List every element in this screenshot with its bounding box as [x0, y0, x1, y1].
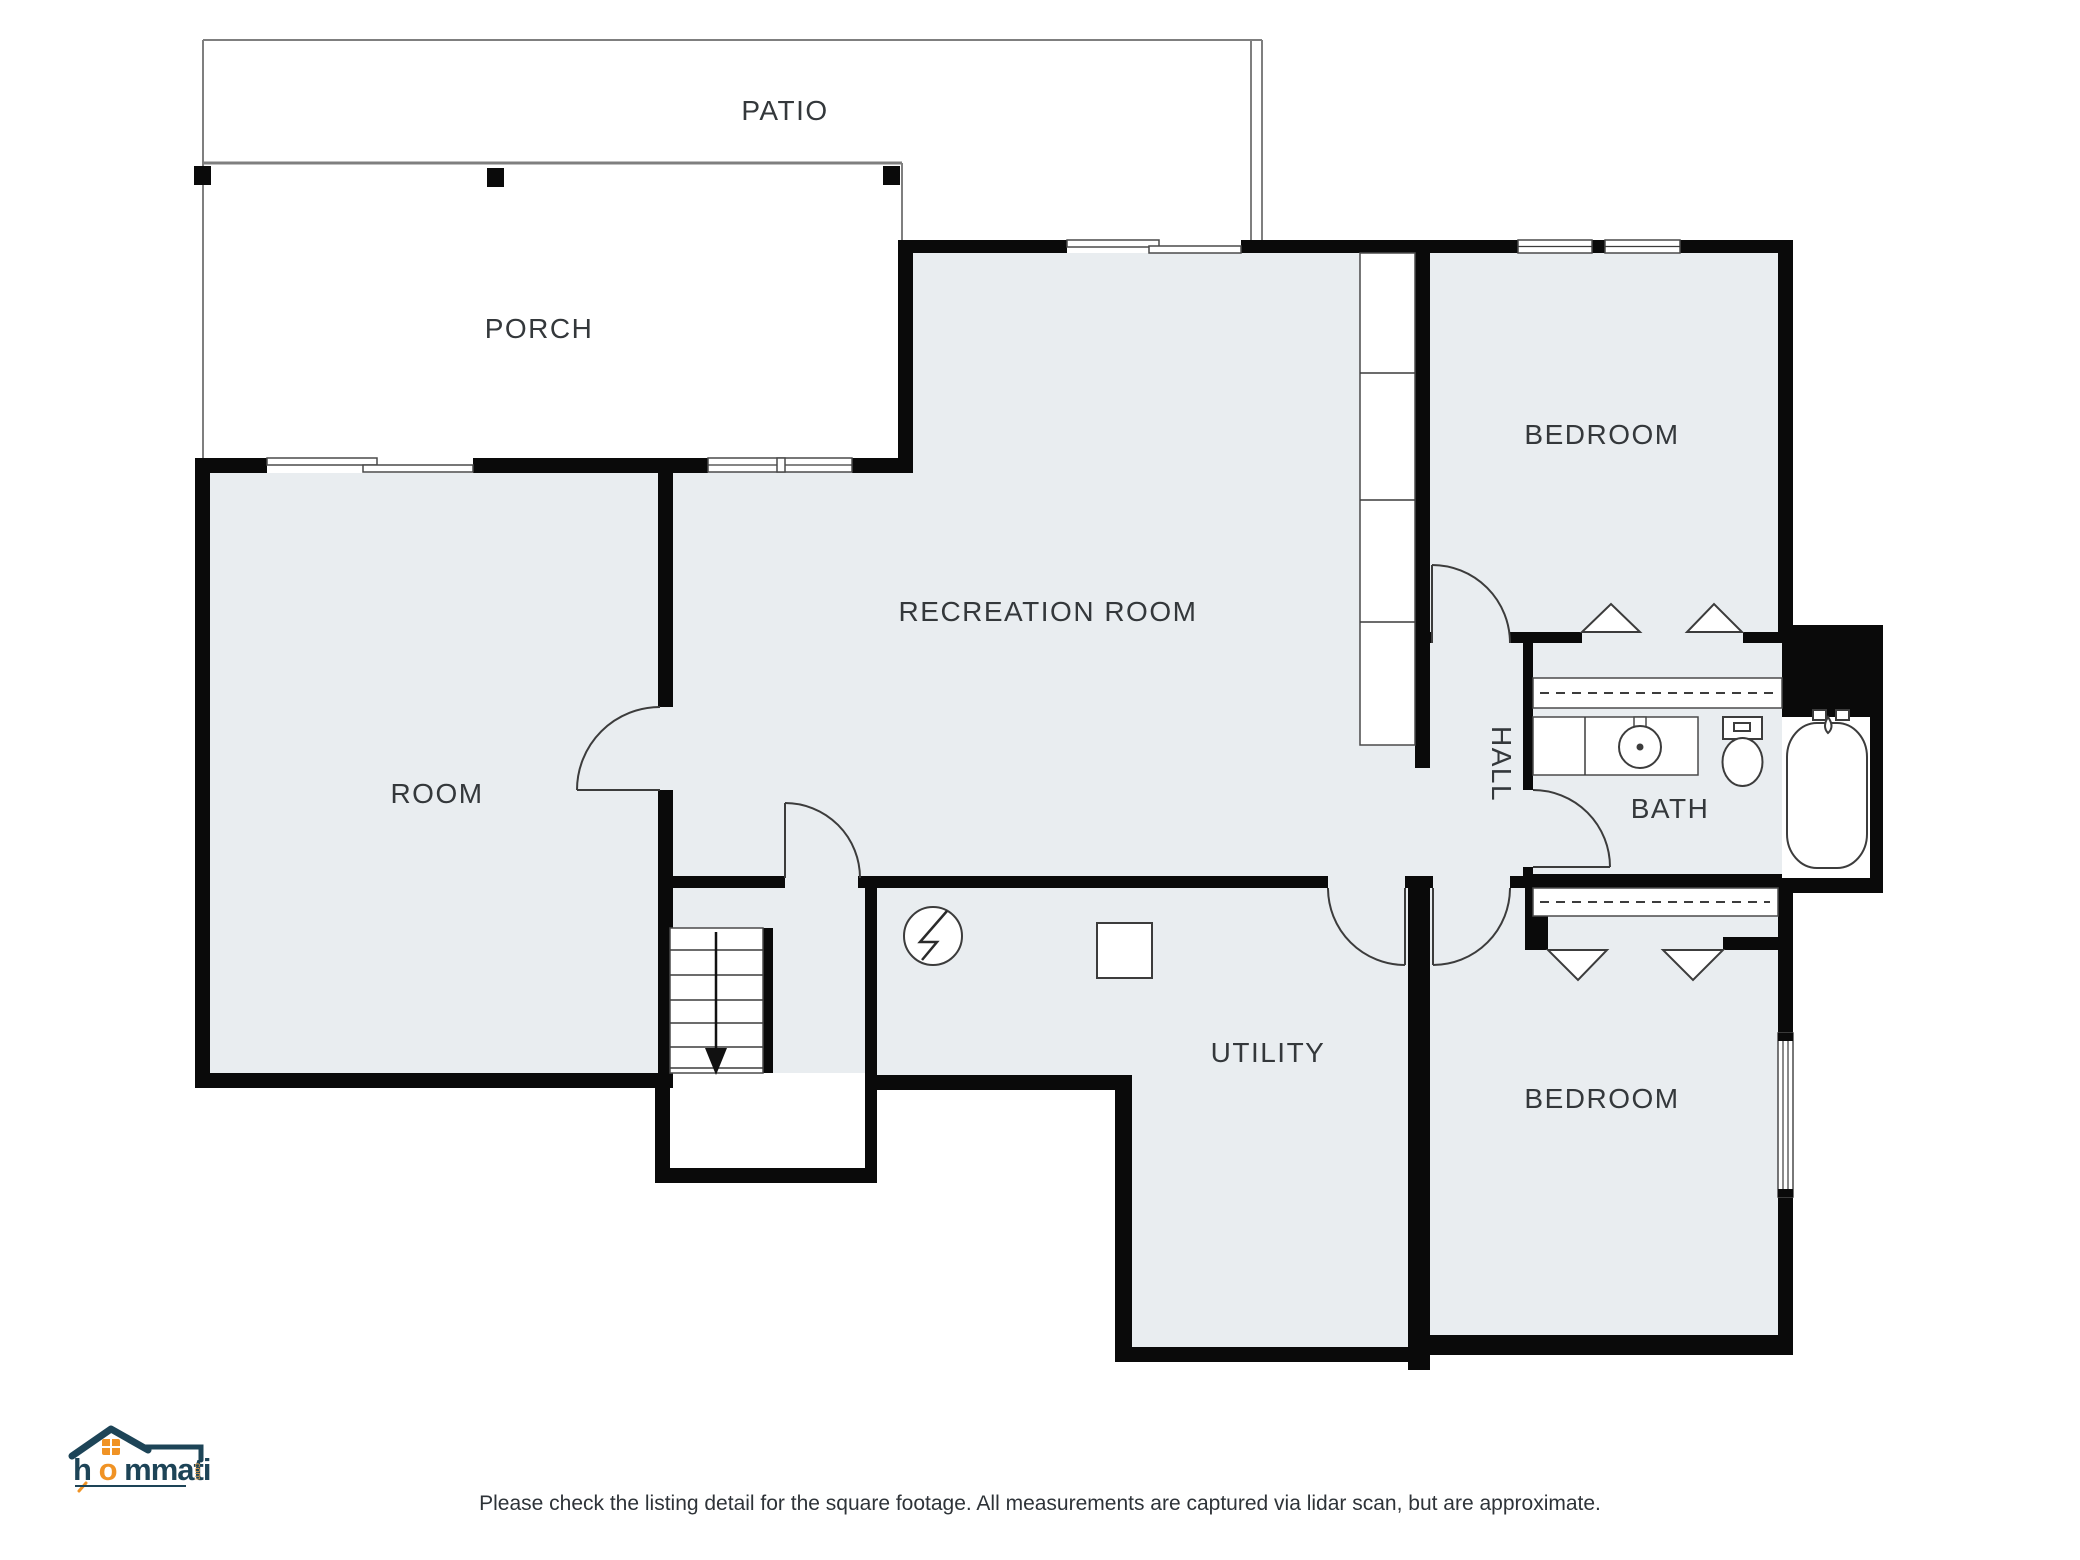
sliding-door-room: [267, 458, 473, 472]
bathroom-vanity: [1533, 717, 1698, 775]
toilet-icon: [1723, 717, 1763, 786]
closet-shelf-unit: [1360, 253, 1415, 745]
floor-plan-drawing: PATIO PORCH ROOM RECREATION ROOM BEDROOM…: [0, 0, 2080, 1560]
room-label-utility: UTILITY: [1211, 1037, 1326, 1068]
room-label-bedroom-bottom: BEDROOM: [1524, 1083, 1679, 1114]
bathtub-icon: [1782, 710, 1870, 878]
svg-text:h o mmati: h o mmati: [73, 1452, 210, 1487]
logo-text-accent: o: [99, 1452, 117, 1487]
room-label-hall: HALL: [1486, 726, 1517, 802]
room-label-bedroom-top: BEDROOM: [1524, 419, 1679, 450]
floor-plan-page: PATIO PORCH ROOM RECREATION ROOM BEDROOM…: [0, 0, 2080, 1560]
window-recreation-room: [708, 458, 852, 472]
room-label-room: ROOM: [390, 778, 483, 809]
room-label-patio: PATIO: [741, 95, 828, 126]
closet-shelf-bottom: [1533, 888, 1778, 916]
sliding-door-recreation-room: [1067, 240, 1241, 253]
logo-text-lead: h: [73, 1452, 91, 1487]
furnace-icon: [904, 907, 962, 965]
room-label-recreation-room: RECREATION ROOM: [899, 596, 1198, 627]
window-bottom-bedroom: [1778, 1033, 1793, 1197]
water-heater-icon: [1097, 923, 1152, 978]
logo-tld-text: com: [193, 1463, 203, 1480]
window-top-bedroom-left: [1518, 240, 1592, 253]
room-label-bath: BATH: [1631, 793, 1710, 824]
window-top-bedroom-right: [1605, 240, 1680, 253]
stairs: [670, 928, 763, 1075]
hommati-logo: h o mmati com: [62, 1423, 212, 1498]
closet-shelf-top: [1533, 678, 1782, 708]
porch-posts: [194, 166, 900, 187]
disclaimer-text: Please check the listing detail for the …: [0, 1492, 2080, 1516]
room-label-porch: PORCH: [485, 313, 594, 344]
porch-outline: [194, 163, 902, 240]
